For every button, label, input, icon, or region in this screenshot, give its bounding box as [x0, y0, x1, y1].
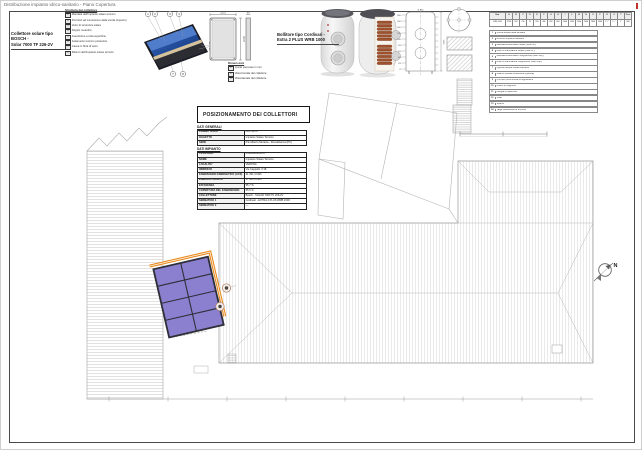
drawing-sheet: Distribuzione impianto idrico-sanitario … [0, 0, 642, 450]
collector-front-view: 1175 2070 90 [210, 11, 251, 61]
structure-legend-item: 2Pozzetto ad immersione della sonda (cop… [65, 19, 139, 24]
coil-turn [377, 59, 392, 62]
boiler-table-cell: M [576, 13, 583, 20]
boiler-table-cell: 1½" [611, 20, 618, 27]
structure-legend-num: 1 [65, 13, 71, 18]
boiler-table-cell: R [604, 13, 611, 20]
connection-label: Ingresso acqua fredda sanitaria [496, 67, 529, 69]
boiler-table-cell: T [618, 13, 625, 20]
tank-top-view [446, 7, 472, 33]
connection-label: Mandata scambiatore solare (fisso inf.) [496, 44, 537, 46]
structure-legend-num: 5 [65, 35, 71, 40]
collector-3d-detail: 12345678 [144, 11, 215, 76]
dati-impianto-label: SERBATOIO 2 [198, 204, 245, 209]
boiler-table-cell: 25 [527, 20, 534, 27]
connection-label: Sfiato [496, 97, 503, 99]
boiler-table-cell: 260 [534, 20, 541, 27]
boiler-table-cell: 460 [541, 20, 548, 27]
dati-impianto: DATI IMPIANTO TIPOLOGIAProduzione ACSNOM… [197, 147, 307, 210]
dati-impianto-row: SERBATOIO 2— [198, 204, 307, 209]
connection-label: Targa caratteristiche tecniche [496, 109, 527, 111]
boiler-table-cell: 790 [520, 20, 527, 27]
dati-impianto-value: — [244, 204, 306, 209]
boiler-table-cell: F [541, 13, 548, 20]
coil-turn [377, 35, 392, 38]
dims-legend-text: Vista laterale del collettore [235, 77, 266, 82]
zigzag-roof-edge [87, 117, 167, 151]
boiler-table-cell: 2060 [597, 20, 604, 27]
structure-legend-num: 2 [65, 19, 71, 24]
structure-legend-num: 6 [65, 40, 71, 45]
dati-generali-label: SEDE [198, 140, 245, 145]
quota-label: 260 [398, 63, 401, 65]
coil-turn [377, 52, 392, 55]
boiler-table-cell: H [555, 13, 562, 20]
boiler-table-cell: Mod. [490, 13, 506, 20]
building-outline [318, 93, 458, 223]
flange-section-detail-2 [447, 55, 472, 71]
quota-label: 1260 [397, 33, 401, 35]
dims-legend-item: 1Quote espresse in mm [228, 66, 288, 71]
quota-label: 1860 [397, 15, 401, 17]
positioning-title-box: POSIZIONAMENTO DEI COLLETTORI [197, 106, 310, 123]
connections-list: 1Uscita acqua calda sanitaria2Ricircolo … [489, 30, 598, 113]
flange-section-detail-1 [447, 37, 472, 50]
structure-legend-num: 4 [65, 29, 71, 34]
quota-label: 1460 [397, 27, 401, 29]
dimensions-legend: Dimensioni 1Quote espresse in mm2Vista f… [228, 62, 288, 82]
dim-width: 1175 [220, 11, 226, 15]
tank-height-dim: 2290 [442, 40, 444, 46]
left-roof-band [87, 151, 163, 399]
coil-turn [377, 45, 392, 48]
dimensions-legend-items: 1Quote espresse in mm2Vista frontale del… [228, 66, 288, 82]
boiler-table-cell: 660 [548, 20, 555, 27]
boiler-table-cell: 1260 [569, 20, 576, 27]
boiler-table-cell: 860 [555, 20, 562, 27]
coil-turn [377, 28, 392, 31]
boiler-dim-table: Mod.ABCDEFGHILMNOPRSTPesoWRB 10002290990… [489, 12, 632, 27]
structure-legend-num: 8 [65, 51, 71, 56]
dims-legend-item: 2Vista frontale del collettore [228, 72, 288, 77]
dims-legend-text: Quote espresse in mm [235, 66, 262, 71]
boiler-table-columns-row: Mod.ABCDEFGHILMNOPRSTPeso [490, 13, 632, 20]
structure-legend-item: 4Doppio meandro [65, 29, 139, 34]
quota-label: 25 [399, 69, 401, 71]
dim-height: 2070 [242, 36, 246, 42]
dati-generali-value: P.le Alberto Moravia - Roccabianca (PC) [244, 140, 306, 145]
boiler-table-cell: 990 [513, 20, 520, 27]
structure-legend-item: 5Assorbitore a tutta superficie [65, 35, 139, 40]
boiler-label-line2: Extra 2 PLUS WRB 1000 [277, 37, 339, 42]
structure-legend-text: Cassa in fibra di vetro [72, 45, 98, 50]
north-label: N [614, 263, 618, 269]
dati-generali-table: COMMITTENTECori S.p.A.OGGETTOImpianto So… [197, 130, 307, 147]
boiler-table-cell: 380 [625, 20, 632, 27]
quota-label: 660 [398, 51, 401, 53]
quota-label: 860 [398, 45, 401, 47]
dati-generali-title: DATI GENERALI [197, 125, 307, 129]
tank-cutaway [359, 9, 401, 78]
coil-turn [377, 21, 392, 24]
dims-legend-item: 3Vista laterale del collettore [228, 77, 288, 82]
collector-label-line1: Collettore solare tipo BOSCH - [11, 31, 69, 42]
north-arrow: N [594, 263, 618, 281]
connection-label: Scarico [496, 103, 505, 105]
boiler-table-cell: Peso [625, 13, 632, 20]
tank-diameter-dim: Ø 990 [418, 10, 425, 12]
boiler-table-cell: A [506, 13, 513, 20]
structure-legend-num: 3 [65, 24, 71, 29]
boiler-table-cell: 1660 [583, 20, 590, 27]
hatched-strip-upper [457, 79, 472, 105]
callout-leader [181, 61, 183, 71]
boiler-table-cell: E [534, 13, 541, 20]
structure-legend-item: 8Ritorno dell'impianto solare termico [65, 51, 139, 56]
callout-leader [171, 65, 173, 71]
chimney [552, 345, 562, 353]
dims-legend-num: 1 [228, 66, 234, 71]
positioning-title: POSIZIONAMENTO DEI COLLETTORI [203, 112, 297, 118]
tank-flange-2 [331, 51, 345, 65]
coil-turn [377, 48, 392, 51]
connection-label: Uscita acqua calda sanitaria [496, 32, 526, 34]
dims-legend-num: 2 [228, 72, 234, 77]
pipe-terminal-2 [216, 302, 224, 310]
dims-legend-num: 3 [228, 77, 234, 82]
quota-label: 460 [398, 57, 401, 59]
structure-legend-text: Assorbitore a tutta superficie [72, 35, 106, 40]
boiler-table-cell: 1060 [562, 20, 569, 27]
coil-turn [377, 24, 392, 27]
structure-legend-items: 1Mandata dell'impianto solare termico2Po… [65, 13, 139, 55]
boiler-table-cell: 2290 [506, 20, 513, 27]
plan-dimension-line [460, 132, 547, 137]
connection-label: Ritorno scambiatore integrazione (fisso … [496, 61, 543, 63]
connection-label: Mandata scambiatore integrazione (fisso … [496, 55, 544, 57]
collector-label-line2: Solar 7000 TF 226-2V [11, 42, 69, 47]
coil-turn [377, 38, 392, 41]
roof-step-detail [228, 354, 236, 363]
roof-plan: N [87, 79, 618, 402]
dati-generali-row: SEDEP.le Alberto Moravia - Roccabianca (… [198, 140, 307, 145]
structure-legend-num: 7 [65, 45, 71, 50]
boiler-table-cell: S [611, 13, 618, 20]
dims-legend-text: Vista frontale del collettore [235, 72, 267, 77]
collector-label: Collettore solare tipo BOSCH - Solar 700… [11, 31, 69, 50]
boiler-dim-table-wrap: Mod.ABCDEFGHILMNOPRSTPesoWRB 10002290990… [489, 12, 632, 27]
dati-generali: DATI GENERALI COMMITTENTECori S.p.A.OGGE… [197, 125, 307, 146]
tank-line-drawing: 1860166014601260106086066046026025 2290 … [397, 9, 444, 75]
dim-depth: 90 [247, 11, 250, 15]
structure-legend-text: Pozzetto ad immersione della sonda (cope… [72, 19, 127, 24]
structure-legend-item: 1Mandata dell'impianto solare termico [65, 13, 139, 18]
structure-legend: Struttura del collettore 1Mandata dell'i… [65, 9, 139, 56]
boiler-table-cell: G [548, 13, 555, 20]
connection-label: Attacco resistenza elettrica (optional) [496, 73, 535, 75]
terrace-detail [194, 366, 208, 373]
boiler-table-cell: N [583, 13, 590, 20]
coil-turn [377, 62, 392, 65]
connection-row: 14Targa caratteristiche tecniche [489, 107, 598, 113]
quota-label: 1060 [397, 39, 401, 41]
connection-label: Ritorno scambiatore solare (fisso inf.) [496, 50, 535, 52]
quota-label: 1660 [397, 21, 401, 23]
sensor-well-1 [327, 24, 329, 26]
dati-impianto-table: TIPOLOGIAProduzione ACSNOMEImpianto Sola… [197, 152, 307, 210]
boiler-table-cell: WRB 1000 [490, 20, 506, 27]
connection-label: Pozzetto porta sonda di regolazione [496, 79, 534, 81]
dati-impianto-title: DATI IMPIANTO [197, 147, 307, 151]
boiler-table-cell: O [590, 13, 597, 20]
connection-label: Anodo di magnesio [496, 85, 517, 87]
coil-turn [377, 31, 392, 34]
boiler-table-cell: P [597, 13, 604, 20]
connection-label: Flangia di ispezione [496, 91, 517, 93]
boiler-table-cell: 1460 [576, 20, 583, 27]
boiler-table-cell: 1¼" [604, 20, 611, 27]
boiler-table-cell: D [527, 13, 534, 20]
structure-legend-item: 7Cassa in fibra di vetro [65, 45, 139, 50]
boiler-table-cell: B [513, 13, 520, 20]
boiler-table-cell: I [562, 13, 569, 20]
structure-legend-text: Doppio meandro [72, 29, 92, 34]
coil-turn [377, 55, 392, 58]
connection-label: Ricircolo impianto sanitario [496, 38, 524, 40]
boiler-table-cell: 2" [618, 20, 625, 27]
boiler-table-cell: C [520, 13, 527, 20]
boiler-table-cell: L [569, 13, 576, 20]
structure-legend-text: Ritorno dell'impianto solare termico [72, 51, 114, 56]
structure-legend-text: Mandata dell'impianto solare termico [72, 13, 116, 18]
collector-side-view [246, 18, 251, 60]
callout-leader [148, 17, 161, 39]
boiler-table-cell: 1860 [590, 20, 597, 27]
boiler-label: Bollitore tipo Cordivari - Extra 2 PLUS … [277, 32, 339, 45]
boiler-table-values-row: WRB 100022909907902526046066086010601260… [490, 20, 632, 27]
